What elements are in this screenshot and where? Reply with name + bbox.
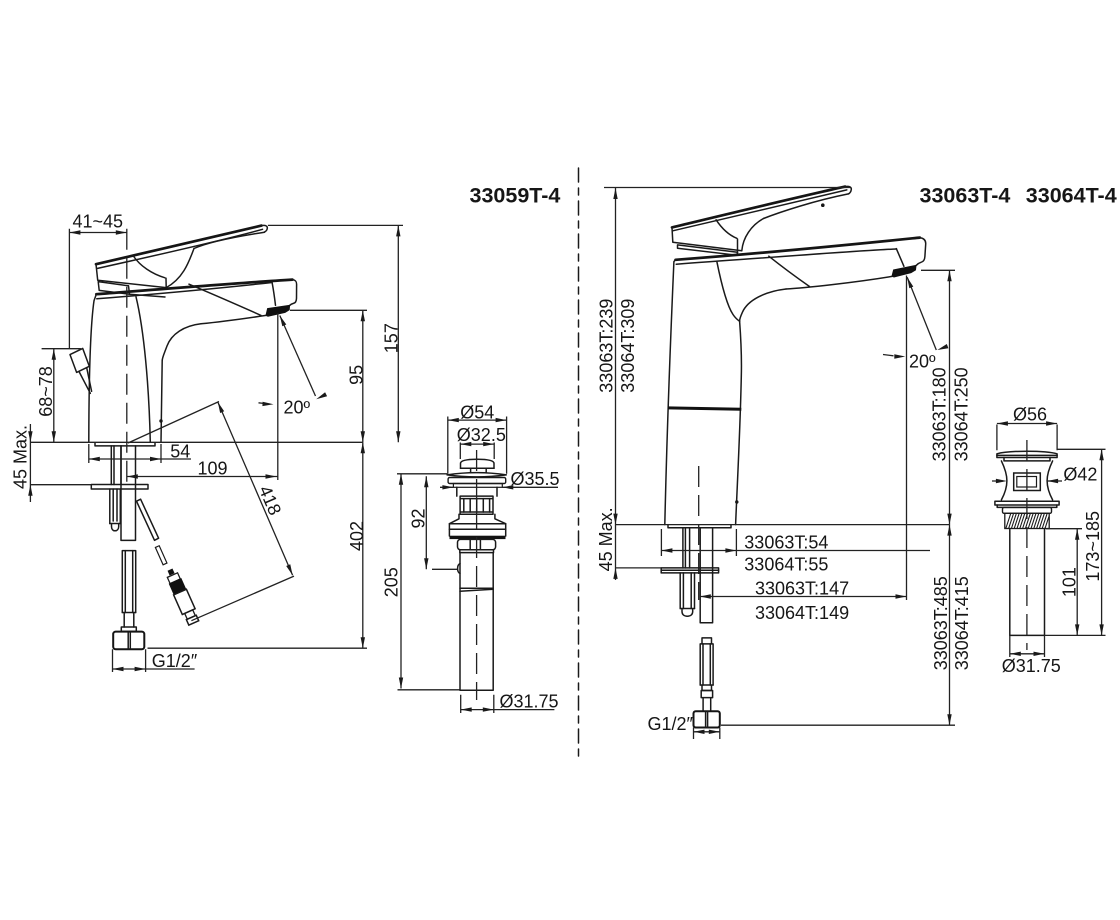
svg-text:205: 205 <box>381 567 401 597</box>
svg-text:95: 95 <box>347 365 367 385</box>
svg-text:92: 92 <box>408 508 428 528</box>
svg-text:20º: 20º <box>284 398 311 418</box>
svg-text:33064T:415: 33064T:415 <box>952 576 972 670</box>
svg-text:G1/2″: G1/2″ <box>648 714 694 734</box>
svg-text:G1/2″: G1/2″ <box>152 651 198 671</box>
svg-text:45 Max.: 45 Max. <box>596 507 616 571</box>
svg-text:Ø31.75: Ø31.75 <box>500 692 559 712</box>
svg-text:Ø31.75: Ø31.75 <box>1002 656 1061 676</box>
svg-text:33059T-4: 33059T-4 <box>470 184 561 208</box>
svg-text:41~45: 41~45 <box>73 212 124 232</box>
svg-text:Ø32.5: Ø32.5 <box>457 425 506 445</box>
svg-text:33063T:180: 33063T:180 <box>929 367 949 461</box>
svg-text:Ø56: Ø56 <box>1013 405 1047 425</box>
svg-text:45 Max.: 45 Max. <box>11 425 31 489</box>
svg-text:68~78: 68~78 <box>36 366 56 417</box>
svg-text:Ø54: Ø54 <box>460 402 494 422</box>
svg-text:33064T:149: 33064T:149 <box>755 603 849 623</box>
svg-text:33064T-4: 33064T-4 <box>1026 184 1117 208</box>
svg-text:33064T:309: 33064T:309 <box>618 299 638 393</box>
svg-text:173~185: 173~185 <box>1083 511 1103 582</box>
svg-text:33064T:55: 33064T:55 <box>744 555 828 575</box>
svg-text:33063T:239: 33063T:239 <box>597 299 617 393</box>
svg-text:33063T:485: 33063T:485 <box>931 576 951 670</box>
svg-text:101: 101 <box>1060 567 1080 597</box>
svg-text:33063T:54: 33063T:54 <box>744 532 828 552</box>
svg-text:109: 109 <box>198 459 228 479</box>
svg-text:157: 157 <box>381 323 401 353</box>
svg-text:Ø42: Ø42 <box>1063 464 1097 484</box>
svg-text:402: 402 <box>347 521 367 551</box>
svg-text:33063T:147: 33063T:147 <box>755 578 849 598</box>
svg-text:Ø35.5: Ø35.5 <box>511 469 560 489</box>
svg-text:33064T:250: 33064T:250 <box>952 367 972 461</box>
svg-text:54: 54 <box>170 442 190 462</box>
svg-text:33063T-4: 33063T-4 <box>920 184 1011 208</box>
